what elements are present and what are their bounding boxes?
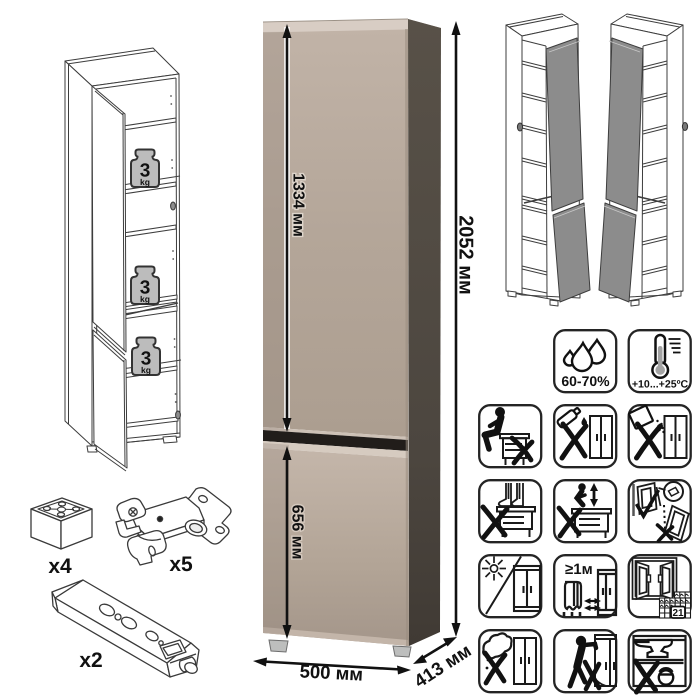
svg-text:21: 21 bbox=[672, 608, 684, 619]
svg-text:+10...+25ºC: +10...+25ºC bbox=[632, 379, 689, 391]
svg-text:60-70%: 60-70% bbox=[561, 373, 610, 389]
svg-text:≥1м: ≥1м bbox=[565, 561, 593, 578]
svg-text:656 мм: 656 мм bbox=[289, 505, 306, 560]
svg-text:x5: x5 bbox=[169, 553, 193, 576]
svg-text:kg: kg bbox=[140, 177, 150, 187]
svg-text:500 мм: 500 мм bbox=[299, 660, 363, 684]
svg-text:2052 мм: 2052 мм bbox=[455, 215, 477, 295]
svg-text:x4: x4 bbox=[48, 555, 72, 578]
svg-text:x2: x2 bbox=[79, 649, 102, 672]
svg-text:1334 мм: 1334 мм bbox=[290, 173, 307, 237]
